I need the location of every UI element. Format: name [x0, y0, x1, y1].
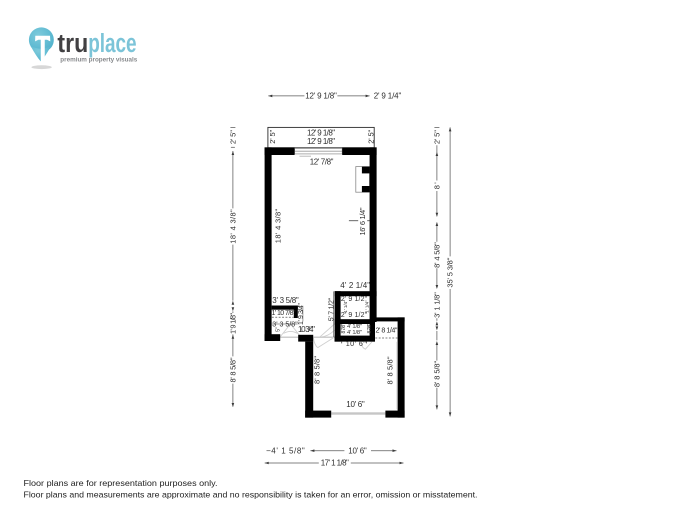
- svg-text:Floor plans and measurements a: Floor plans and measurements are approxi…: [24, 490, 478, 500]
- svg-text:10 3/4": 10 3/4": [298, 325, 315, 334]
- svg-text:2' 5": 2' 5": [229, 130, 238, 144]
- svg-text:12' 9 1/8": 12' 9 1/8": [307, 128, 335, 137]
- svg-text:12' 9 1/8": 12' 9 1/8": [305, 91, 337, 100]
- svg-text:35' 5 3/8": 35' 5 3/8": [445, 257, 454, 287]
- svg-text:2' 5": 2' 5": [433, 130, 442, 144]
- svg-text:1' 9 1/8": 1' 9 1/8": [229, 313, 238, 334]
- svg-text:10' 6": 10' 6": [346, 400, 365, 409]
- svg-text:1' 1/4": 1' 1/4": [343, 300, 348, 313]
- svg-text:3' 3 5/8": 3' 3 5/8": [272, 296, 299, 305]
- svg-text:2' 5": 2' 5": [268, 129, 277, 143]
- svg-text:1' 1/4": 1' 1/4": [364, 300, 369, 313]
- svg-text:8': 8': [433, 182, 442, 190]
- svg-text:4' 2 1/4": 4' 2 1/4": [340, 281, 370, 290]
- svg-text:8' 8 5/8": 8' 8 5/8": [433, 361, 442, 388]
- svg-text:4' 1/8": 4' 1/8": [347, 330, 362, 336]
- svg-text:17' 1 1/8": 17' 1 1/8": [321, 459, 349, 468]
- svg-text:10' 6": 10' 6": [346, 339, 367, 348]
- svg-text:8 7/8": 8 7/8": [367, 323, 373, 333]
- svg-text:2' 9 1/4": 2' 9 1/4": [374, 91, 402, 100]
- svg-text:8 7/8": 8 7/8": [341, 323, 347, 333]
- svg-text:3' 1 1/8": 3' 1 1/8": [433, 292, 442, 318]
- svg-text:5": 5": [276, 327, 282, 332]
- svg-text:10' 6": 10' 6": [348, 446, 367, 455]
- svg-text:premium property visuals: premium property visuals: [60, 57, 137, 64]
- svg-text:5' 7 1/2": 5' 7 1/2": [328, 297, 335, 321]
- svg-text:8' 8 5/8": 8' 8 5/8": [312, 356, 321, 384]
- svg-text:place: place: [88, 30, 136, 58]
- svg-text:2' 5": 2' 5": [366, 129, 375, 143]
- svg-text:2' 8 1/4": 2' 8 1/4": [376, 325, 398, 334]
- svg-text:1' 10 7/8": 1' 10 7/8": [272, 310, 296, 317]
- svg-text:8' 8 5/8": 8' 8 5/8": [229, 357, 238, 382]
- svg-text:8' 8 5/8": 8' 8 5/8": [386, 356, 395, 384]
- svg-text:8' 4 5/8": 8' 4 5/8": [433, 242, 442, 268]
- svg-text:1' 9 3/4": 1' 9 3/4": [298, 303, 305, 325]
- svg-text:tru: tru: [57, 30, 88, 58]
- svg-text:12' 7/8": 12' 7/8": [310, 157, 334, 166]
- svg-text:16' 6 1/4": 16' 6 1/4": [358, 207, 367, 235]
- svg-text:Floor plans are for representa: Floor plans are for representation purpo…: [24, 478, 218, 488]
- svg-text:18' 4 3/8": 18' 4 3/8": [273, 208, 282, 243]
- svg-text:4' 1 5/8": 4' 1 5/8": [271, 446, 305, 455]
- svg-text:18' 4 3/8": 18' 4 3/8": [229, 209, 238, 244]
- svg-text:12' 9 1/8": 12' 9 1/8": [307, 137, 335, 146]
